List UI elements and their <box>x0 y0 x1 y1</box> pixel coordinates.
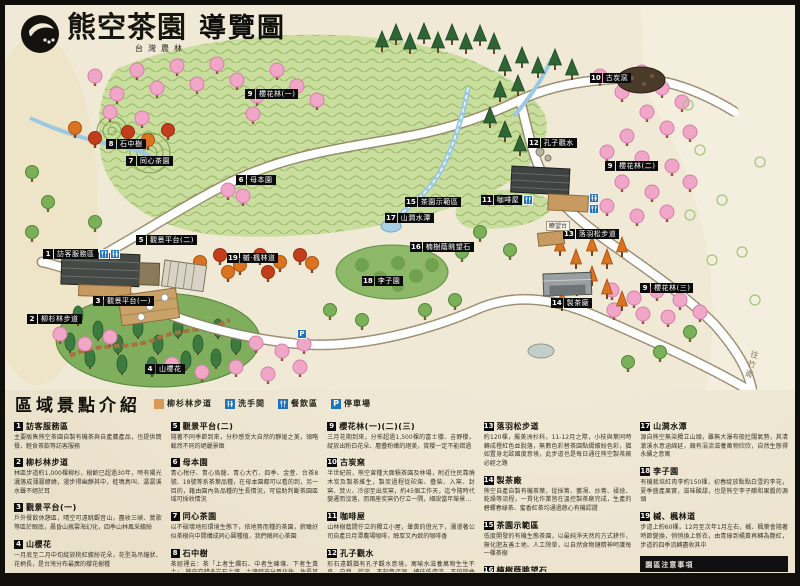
legend-item-label: 洗手間 <box>238 398 265 409</box>
poi-item-body: 林區步道約1,000棵柳杉，樹齡已超過30年，時有陽光灑落成薄霧繚繞，漫步得幽靜… <box>14 470 162 496</box>
legend-item-label: 柳杉林步道 <box>167 398 212 409</box>
marker-number: 17 <box>385 213 397 223</box>
marker-number: 4 <box>145 364 155 374</box>
poi-item-heading: 11咖啡屋 <box>327 511 475 522</box>
poi-item-heading: 9櫻花林(一)(二)(三) <box>327 421 475 432</box>
legend-item-label: 停車場 <box>344 398 371 409</box>
description-columns: 1訪客服務區主要販售熊空茶園自製有機茶與自產農產品，也提供簡餐、輕食茶飲等訪客服… <box>14 421 788 572</box>
poi-item-number: 7 <box>171 512 180 521</box>
map-marker-觀景平台(一): 3觀景平台(一) <box>93 296 154 306</box>
poi-item-body: 山林樹蔭間佇立的獨立小屋，暈黃的燈光下，瀰漫著公司自產日月潭農場咖啡，醇厚又內斂… <box>327 524 475 541</box>
poi-item-number: 15 <box>484 521 494 530</box>
map-sign-往竹崙: 往竹崙 <box>743 349 760 380</box>
poi-item-heading: 12孔子觀水 <box>327 548 475 559</box>
poi-item-15: 15茶園示範區低度開發的有機生態茶園，以最純淨天然的方式耕作，無化肥友善土地、人… <box>484 520 632 559</box>
poi-item-number: 1 <box>14 422 23 431</box>
poi-item-heading: 13落羽松步道 <box>484 421 632 432</box>
marker-number: 9 <box>245 89 255 99</box>
poi-item-title: 孔子觀水 <box>340 548 374 559</box>
poi-item-heading: 18李子園 <box>640 466 788 477</box>
map-marker-山櫻花: 4山櫻花 <box>145 364 185 374</box>
poi-item-number: 2 <box>14 458 23 467</box>
marker-label: 槭·楓林道 <box>240 253 279 263</box>
poi-item-number: 12 <box>327 549 337 558</box>
map-sign-瞭望台: 瞭望台 <box>546 221 570 231</box>
poi-item-2: 2柳杉林步道林區步道約1,000棵柳杉，樹齡已超過30年，時有陽光灑落成薄霧繚繞… <box>14 457 162 496</box>
map-marker-製茶廠: 14製茶廠 <box>551 298 592 308</box>
poi-item-title: 櫻花林(一)(二)(三) <box>339 421 415 432</box>
description-column-1: 1訪客服務區主要販售熊空茶園自製有機茶與自產農產品，也提供簡餐、輕食茶飲等訪客服… <box>14 421 162 572</box>
poi-item-number: 18 <box>640 467 650 476</box>
poi-item-body: 以不破壞地形環境生態下，依地勢而種的茶園，俯瞰好似茶樹向中間構成同心圓種植，我們… <box>171 524 319 541</box>
poi-item-heading: 14製茶廠 <box>484 475 632 486</box>
poi-item-number: 14 <box>484 476 494 485</box>
marker-label: 製茶廠 <box>564 298 593 308</box>
marker-number: 10 <box>590 73 602 83</box>
poi-item-title: 訪客服務區 <box>26 421 69 432</box>
poi-item-number: 4 <box>14 540 23 549</box>
poi-item-body: 一月底至二月中旬綻放桃紅繽紛花朵，花型為吊鐘狀、花柄長，是台灣分布最廣的櫻花樹種 <box>14 552 162 569</box>
marker-label: 山澗水潭 <box>398 213 434 223</box>
map-markers-layer: 1訪客服務區2柳杉林步道3觀景平台(一)4山櫻花5觀景平台(二)6母本園7同心茶… <box>5 5 795 390</box>
map-marker-楠樹蔭眺望石: 16楠樹蔭眺望石 <box>410 242 474 252</box>
map-marker-母本園: 6母本園 <box>236 175 276 185</box>
map-marker-櫻花林(三): 9櫻花林(三) <box>640 283 693 293</box>
marker-label: 櫻花林(二) <box>616 161 658 171</box>
poi-item-18: 18李子園有機栽培紅肉李約150棵，初春綻放點點白雪的李花，夏季盛產果實，滋味酸… <box>640 466 788 505</box>
poi-item-heading: 4山櫻花 <box>14 539 162 550</box>
marker-number: 1 <box>43 249 53 259</box>
map-marker-櫻花林(二): 9櫻花林(二) <box>605 161 658 171</box>
poi-item-number: 17 <box>640 422 650 431</box>
poi-item-body: 隨著不同季節到來，分秒感受大自然的靜謐之美，領略截然不同的絕麗景緻 <box>171 434 319 451</box>
poi-item-number: 5 <box>171 422 180 431</box>
poi-item-body: 主要販售熊空茶園自製有機茶與自產農產品，也提供簡餐、輕食茶飲等訪客服務 <box>14 434 162 451</box>
poi-item-title: 山櫻花 <box>26 539 52 550</box>
map-marker-孔子觀水: 12孔子觀水 <box>528 138 577 148</box>
poi-item-heading: 1訪客服務區 <box>14 421 162 432</box>
legend-item-停車場: P停車場 <box>331 398 371 409</box>
marker-number: 9 <box>640 283 650 293</box>
logo-bear-icon <box>19 13 61 55</box>
poi-item-heading: 3觀景平台(一) <box>14 502 162 513</box>
trail-icon <box>154 399 164 409</box>
legend-item-label: 餐飲區 <box>291 398 318 409</box>
poi-item-heading: 10古炭窯 <box>327 457 475 468</box>
poi-item-body: 有機栽培紅肉李約150棵，初春綻放點點白雪的李花，夏季盛產果實，滋味酸甜，也是熊… <box>640 479 788 505</box>
parking-icon: P <box>297 329 307 339</box>
parking-icon: P <box>331 399 341 409</box>
marker-label: 落羽松步道 <box>576 229 620 239</box>
marker-label: 柳杉林步道 <box>38 314 82 324</box>
poi-item-8: 8石中樹茶經裡云：茶「上者生爛石、中者生礫壤、下者生黃土」，熊空交錯多岩石土壤，… <box>171 548 319 573</box>
poi-item-number: 3 <box>14 503 23 512</box>
poi-item-heading: 6母本園 <box>171 457 319 468</box>
poi-item-title: 茶園示範區 <box>497 520 540 531</box>
description-column-2: 5觀景平台(二)隨著不同季節到來，分秒感受大自然的靜謐之美，領略截然不同的絕麗景… <box>171 421 319 572</box>
poi-item-17: 17山澗水潭源自熊空無染獨立山頭，雖無大瀑布般壯闊氣勢，其清澈溪水意涵綿延，頗有… <box>640 421 788 460</box>
restaurant-icon <box>99 249 109 259</box>
poi-item-body: 步道上約60棵，12月至次年1月左右，槭、楓葉會隨著時節變換，悄悄換上新衣，由青… <box>640 524 788 550</box>
map-marker-李子園: 18李子園 <box>362 276 403 286</box>
poi-item-12: 12孔子觀水形石遠觀猶有孔子觀水意境，寓喻水滋養萬物生生不息、自然、從容，不刻意… <box>327 548 475 573</box>
page-title-suffix: 導覽圖 <box>199 15 286 42</box>
map-marker-槭·楓林道: 19槭·楓林道 <box>227 253 278 263</box>
poi-item-title: 觀景平台(一) <box>26 502 77 513</box>
marker-label: 觀景平台(一) <box>104 296 154 306</box>
map-marker-柳杉林步道: 2柳杉林步道 <box>27 314 82 324</box>
marker-number: 12 <box>528 138 540 148</box>
poi-item-number: 11 <box>327 512 337 521</box>
poi-item-heading: 19槭、楓林道 <box>640 511 788 522</box>
poi-item-number: 10 <box>327 458 337 467</box>
poi-item-body: 源自熊空無染獨立山頭，雖無大瀑布般壯闊氣勢，其清澈溪水意涵綿延，頗有涓流滋養萬物… <box>640 434 788 460</box>
poi-item-7: 7同心茶園以不破壞地形環境生態下，依地勢而種的茶園，俯瞰好似茶樹向中間構成同心圓… <box>171 511 319 541</box>
marker-label: 母本園 <box>247 175 276 185</box>
poi-item-title: 母本園 <box>183 457 209 468</box>
restaurant-icon <box>523 195 533 205</box>
legend-item-餐飲區: 餐飲區 <box>278 398 318 409</box>
marker-label: 咖啡屋 <box>494 195 523 205</box>
marker-label: 李子園 <box>375 276 404 286</box>
map-marker-同心茶園: 7同心茶園 <box>126 156 173 166</box>
marker-label: 孔子觀水 <box>541 138 577 148</box>
map-marker-櫻花林(一): 9櫻花林(一) <box>245 89 298 99</box>
poi-item-5: 5觀景平台(二)隨著不同季節到來，分秒感受大自然的靜謐之美，領略截然不同的絕麗景… <box>171 421 319 451</box>
poi-item-14: 14製茶廠熊空自產自製有機茶葉，從採菁、萎凋、炒菁、揉捻、乾燥等流程，一貫化作業… <box>484 475 632 514</box>
marker-label: 山櫻花 <box>156 364 185 374</box>
marker-label: 櫻花林(一) <box>256 89 298 99</box>
poi-item-4: 4山櫻花一月底至二月中旬綻放桃紅繽紛花朵，花型為吊鐘狀、花柄長，是台灣分布最廣的… <box>14 539 162 569</box>
marker-number: 19 <box>227 253 239 263</box>
poi-item-title: 山澗水潭 <box>653 421 687 432</box>
marker-number: 15 <box>405 197 417 207</box>
poi-item-heading: 2柳杉林步道 <box>14 457 162 468</box>
map-marker-古炭窯: 10古炭窯 <box>590 73 631 83</box>
map-marker-茶園示範區: 15茶園示範區 <box>405 197 461 207</box>
toilet-icon <box>589 193 599 203</box>
poi-item-title: 製茶廠 <box>497 475 523 486</box>
legend-title: 區域景點介紹 <box>15 391 141 416</box>
poi-item-body: 約120棵，屬美洲杉科，11-12月之際，小枝與葉同時轉成橙紅色並脫落，無數色彩… <box>484 434 632 469</box>
marker-number: 5 <box>136 235 146 245</box>
marker-number: 9 <box>605 161 615 171</box>
restaurant-icon <box>589 204 599 214</box>
poi-item-title: 槭、楓林道 <box>653 511 696 522</box>
park-notice-box: 園區注意事項◎ 入園券 NT100元/人，120公分以下及身障人士免費入園◎ 入… <box>640 556 788 572</box>
map-marker-咖啡屋: 11咖啡屋 <box>481 195 533 205</box>
page-title: 熊空茶園 <box>67 13 187 42</box>
poi-item-1: 1訪客服務區主要販售熊空茶園自製有機茶與自產農產品，也提供簡餐、輕食茶飲等訪客服… <box>14 421 162 451</box>
poi-item-heading: 8石中樹 <box>171 548 319 559</box>
poi-item-19: 19槭、楓林道步道上約60棵，12月至次年1月左右，槭、楓葉會隨著時節變換，悄悄… <box>640 511 788 550</box>
restaurant-icon <box>278 399 288 409</box>
poi-item-body: 茶經裡云：茶「上者生爛石、中者生礫壤、下者生黃土」，熊空交錯多岩石土壤，土壤經充… <box>171 561 319 573</box>
marker-label: 古炭窯 <box>603 73 632 83</box>
poi-item-title: 楠樹蔭眺望石 <box>497 565 548 572</box>
marker-label: 茶園示範區 <box>418 197 462 207</box>
poi-item-heading: 15茶園示範區 <box>484 520 632 531</box>
poi-item-number: 9 <box>327 422 336 431</box>
poi-item-title: 咖啡屋 <box>340 511 366 522</box>
title-block: 熊空茶園 台灣農林 <box>67 13 187 54</box>
poi-item-10: 10古炭窯半世紀前，熊空曾種大面積茶園及林場，附近住民靠燒木炭及製茶維生，製炭過… <box>327 457 475 505</box>
marker-label: 同心茶園 <box>137 156 173 166</box>
poi-item-number: 16 <box>484 566 494 572</box>
marker-number: 8 <box>106 139 116 149</box>
poi-item-3: 3觀景平台(一)戶外餐飲休憩區，晴空可遠眺觀音山，盡收三峽、鶯歌等區於眼底，晨昏… <box>14 502 162 532</box>
poi-item-number: 8 <box>171 549 180 558</box>
poi-item-body: 熊空自產自製有機茶葉，從採菁、萎凋、炒菁、揉捻、乾燥等流程，一貫化作業皆在溫控製… <box>484 488 632 514</box>
marker-label: 楠樹蔭眺望石 <box>423 242 474 252</box>
description-column-5: 17山澗水潭源自熊空無染獨立山頭，雖無大瀑布般壯闊氣勢，其清澈溪水意涵綿延，頗有… <box>640 421 788 572</box>
poi-item-title: 同心茶園 <box>183 511 217 522</box>
poi-item-title: 落羽松步道 <box>497 421 540 432</box>
poi-item-body: 青心柑仔、青心烏龍、青心大冇、四季、金萱、台茶8號、18號等系茶葉品種，在母本園… <box>171 470 319 505</box>
poi-item-heading: 7同心茶園 <box>171 511 319 522</box>
marker-label: 訪客服務區 <box>54 249 98 259</box>
poi-item-heading: 17山澗水潭 <box>640 421 788 432</box>
description-column-3: 9櫻花林(一)(二)(三)三月花期到來，分佈超過1,500棵的富士櫻、吉野櫻，綻… <box>327 421 475 572</box>
marker-number: 14 <box>551 298 563 308</box>
legend-item-柳杉林步道: 柳杉林步道 <box>154 398 212 409</box>
poi-item-6: 6母本園青心柑仔、青心烏龍、青心大冇、四季、金萱、台茶8號、18號等系茶葉品種，… <box>171 457 319 505</box>
poi-item-body: 形石遠觀猶有孔子觀水意境，寓喻水滋養萬物生生不息、自然、從容，不刻意迂迴，總往低… <box>327 561 475 573</box>
marker-number: 16 <box>410 242 422 252</box>
marker-label: 石中樹 <box>117 139 146 149</box>
map-poster: 熊空茶園 台灣農林 導覽圖 1訪客服務區2柳杉林步道3觀景平台(一)4山櫻花5觀… <box>5 5 795 573</box>
toilet-icon <box>225 399 235 409</box>
marker-number: 7 <box>126 156 136 166</box>
poi-item-heading: 16楠樹蔭眺望石 <box>484 565 632 572</box>
poi-item-number: 19 <box>640 512 650 521</box>
page-subtitle: 台灣農林 <box>67 43 187 54</box>
poi-item-title: 觀景平台(二) <box>183 421 234 432</box>
poi-item-title: 石中樹 <box>183 548 209 559</box>
marker-number: 18 <box>362 276 374 286</box>
map-marker-山澗水潭: 17山澗水潭 <box>385 213 434 223</box>
marker-number: 6 <box>236 175 246 185</box>
poi-item-heading: 5觀景平台(二) <box>171 421 319 432</box>
poi-item-number: 6 <box>171 458 180 467</box>
poi-item-13: 13落羽松步道約120棵，屬美洲杉科，11-12月之際，小枝與葉同時轉成橙紅色並… <box>484 421 632 469</box>
map-marker-訪客服務區: 1訪客服務區 <box>43 249 120 259</box>
map-marker-落羽松步道: 13落羽松步道 <box>563 229 619 239</box>
map-marker-觀景平台(二): 5觀景平台(二) <box>136 235 197 245</box>
toilet-icon <box>110 249 120 259</box>
poi-item-number: 13 <box>484 422 494 431</box>
poi-item-body: 三月花期到來，分佈超過1,500棵的富士櫻、吉野櫻，綻放出粉白花朵、層疊粉嫩的絕… <box>327 434 475 451</box>
marker-number: 3 <box>93 296 103 306</box>
poi-item-title: 柳杉林步道 <box>26 457 69 468</box>
legend-item-洗手間: 洗手間 <box>225 398 265 409</box>
poi-item-16: 16楠樹蔭眺望石中繼歇腳好地方，眼前一覽無遺無遮蔽，瞭望三峽、樹林、土城、鶯歌，… <box>484 565 632 572</box>
poi-item-9: 9櫻花林(一)(二)(三)三月花期到來，分佈超過1,500棵的富士櫻、吉野櫻，綻… <box>327 421 475 451</box>
poi-item-body: 低度開發的有機生態茶園，以最純淨天然的方式耕作，無化肥友善土地、人工除草，以自然… <box>484 533 632 559</box>
poi-item-body: 半世紀前，熊空曾種大面積茶園及林場，附近住民靠燒木炭及製茶維生，製炭過程從砍柴、… <box>327 470 475 505</box>
marker-label: 櫻花林(三) <box>651 283 693 293</box>
description-column-4: 13落羽松步道約120棵，屬美洲杉科，11-12月之際，小枝與葉同時轉成橙紅色並… <box>484 421 632 572</box>
poi-item-body: 戶外餐飲休憩區，晴空可遠眺觀音山，盡收三峽、鶯歌等區於眼底，晨昏山嵐雲海幻化，四… <box>14 515 162 532</box>
poi-item-11: 11咖啡屋山林樹蔭間佇立的獨立小屋，暈黃的燈光下，瀰漫著公司自產日月潭農場咖啡，… <box>327 511 475 541</box>
marker-number: 11 <box>481 195 493 205</box>
poi-item-title: 李子園 <box>653 466 679 477</box>
poi-item-title: 古炭窯 <box>340 457 366 468</box>
legend-bar: 區域景點介紹 柳杉林步道洗手間餐飲區P停車場 <box>15 391 371 416</box>
park-notice-title: 園區注意事項 <box>645 560 783 570</box>
header: 熊空茶園 台灣農林 導覽圖 <box>19 13 286 55</box>
marker-number: 2 <box>27 314 37 324</box>
map-marker-石中樹: 8石中樹 <box>106 139 146 149</box>
marker-label: 觀景平台(二) <box>147 235 197 245</box>
